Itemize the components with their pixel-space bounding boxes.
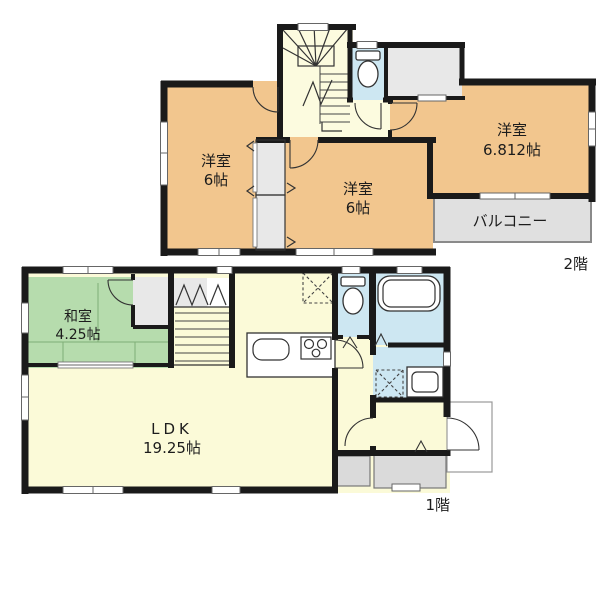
- first-floor-plan: 和室 4.25帖 LDK 19.25帖 1階: [22, 267, 493, 515]
- 2f-floor-label: 2階: [563, 255, 588, 273]
- toilet-icon-2f: [356, 51, 380, 87]
- 2f-room-left-name: 洋室: [201, 152, 231, 170]
- tatami-room-size: 4.25帖: [55, 327, 100, 343]
- 2f-closet-topright: [387, 45, 462, 100]
- 2f-room-right-name: 洋室: [497, 121, 527, 139]
- tatami-room-name: 和室: [64, 308, 92, 325]
- balcony-label: バルコニー: [473, 212, 548, 230]
- toilet-icon-1f: [341, 277, 365, 314]
- vanity-sink-icon: [407, 367, 443, 397]
- ldk-size: 19.25帖: [143, 439, 201, 457]
- ldk-name: LDK: [151, 420, 193, 438]
- bathtub-icon: [378, 276, 440, 311]
- porch-step-notch: [392, 484, 420, 491]
- floor-plan-page: 洋室 6帖 洋室 6帖 洋室 6.812帖 バルコニー 2階: [0, 0, 600, 599]
- 2f-room-right-size: 6.812帖: [483, 141, 541, 159]
- porch-step-main: [374, 454, 446, 488]
- porch-step-left: [337, 456, 370, 486]
- 2f-room-left-size: 6帖: [204, 171, 229, 189]
- 1f-stair-closet: [173, 278, 207, 307]
- tatami-closet: [133, 277, 171, 327]
- 1f-floor-label: 1階: [425, 496, 450, 514]
- 2f-room-center-size: 6帖: [346, 199, 371, 217]
- entrance-canopy-outline: [447, 402, 492, 472]
- 2f-room-center-name: 洋室: [343, 180, 373, 198]
- second-floor-plan: 洋室 6帖 洋室 6帖 洋室 6.812帖 バルコニー 2階: [161, 24, 597, 274]
- floor-plan-drawing: 洋室 6帖 洋室 6帖 洋室 6.812帖 バルコニー 2階: [0, 0, 600, 599]
